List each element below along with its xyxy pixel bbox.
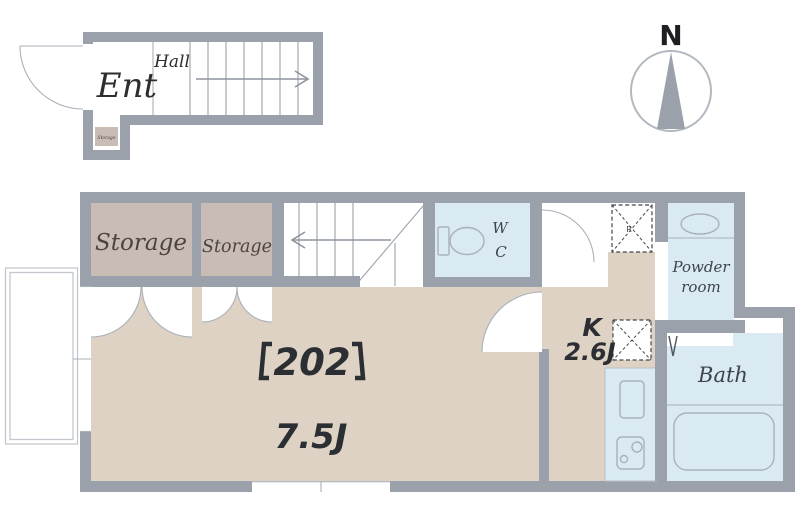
hall-label: Hall <box>153 52 190 72</box>
floor-plan-page: Storage Ent Hall N <box>0 0 800 509</box>
partition-wall <box>272 203 284 287</box>
north-label: N <box>659 19 682 52</box>
washer-space <box>613 320 651 360</box>
main-stairs <box>284 203 423 287</box>
main-size-label: 7.5J <box>275 417 348 457</box>
wc-label: C <box>495 243 507 261</box>
left-window <box>73 286 91 432</box>
wc-wall <box>530 203 542 287</box>
stairs-up-arrow-icon <box>196 71 308 87</box>
entrance-storage-label: Storage <box>98 135 116 141</box>
bath-label: Bath <box>697 363 748 387</box>
storage-header-wall <box>91 276 360 287</box>
wc-wall <box>435 277 542 287</box>
unit-number-label: 202 <box>261 341 363 384</box>
kitchen-floor-patch <box>608 252 655 287</box>
main-unit: W C R Powder room <box>6 192 796 492</box>
floor-plan-canvas: Storage Ent Hall N <box>0 0 800 509</box>
svg-text:202: 202 <box>273 341 350 384</box>
entrance-unit: Storage Ent Hall <box>20 32 323 160</box>
powder-room-label: room <box>681 278 720 296</box>
wc-label: W <box>492 219 509 237</box>
partition-wall <box>423 203 435 287</box>
bath-room: Bath <box>667 333 783 481</box>
kitchen-counter <box>605 368 657 481</box>
entrance-door-arc <box>20 46 83 109</box>
fridge-mark: R <box>626 225 632 234</box>
powder-room-label: Powder <box>671 258 730 276</box>
kitchen-size-label: 2.6J <box>564 338 616 366</box>
wc-room: W C <box>435 203 530 277</box>
bottom-window <box>252 481 390 492</box>
kitchen-wall <box>539 349 549 481</box>
north-compass: N <box>631 19 711 131</box>
bath-wall <box>655 333 667 481</box>
partition-wall <box>192 203 201 287</box>
ent-label: Ent <box>96 66 158 106</box>
entrance-door-opening <box>82 44 94 110</box>
fridge-space: R <box>612 205 652 252</box>
powder-room: Powder room <box>655 203 745 333</box>
balcony <box>6 268 78 444</box>
storage-room-1-label: Storage <box>95 230 187 256</box>
storage-room-2-label: Storage <box>202 237 272 257</box>
